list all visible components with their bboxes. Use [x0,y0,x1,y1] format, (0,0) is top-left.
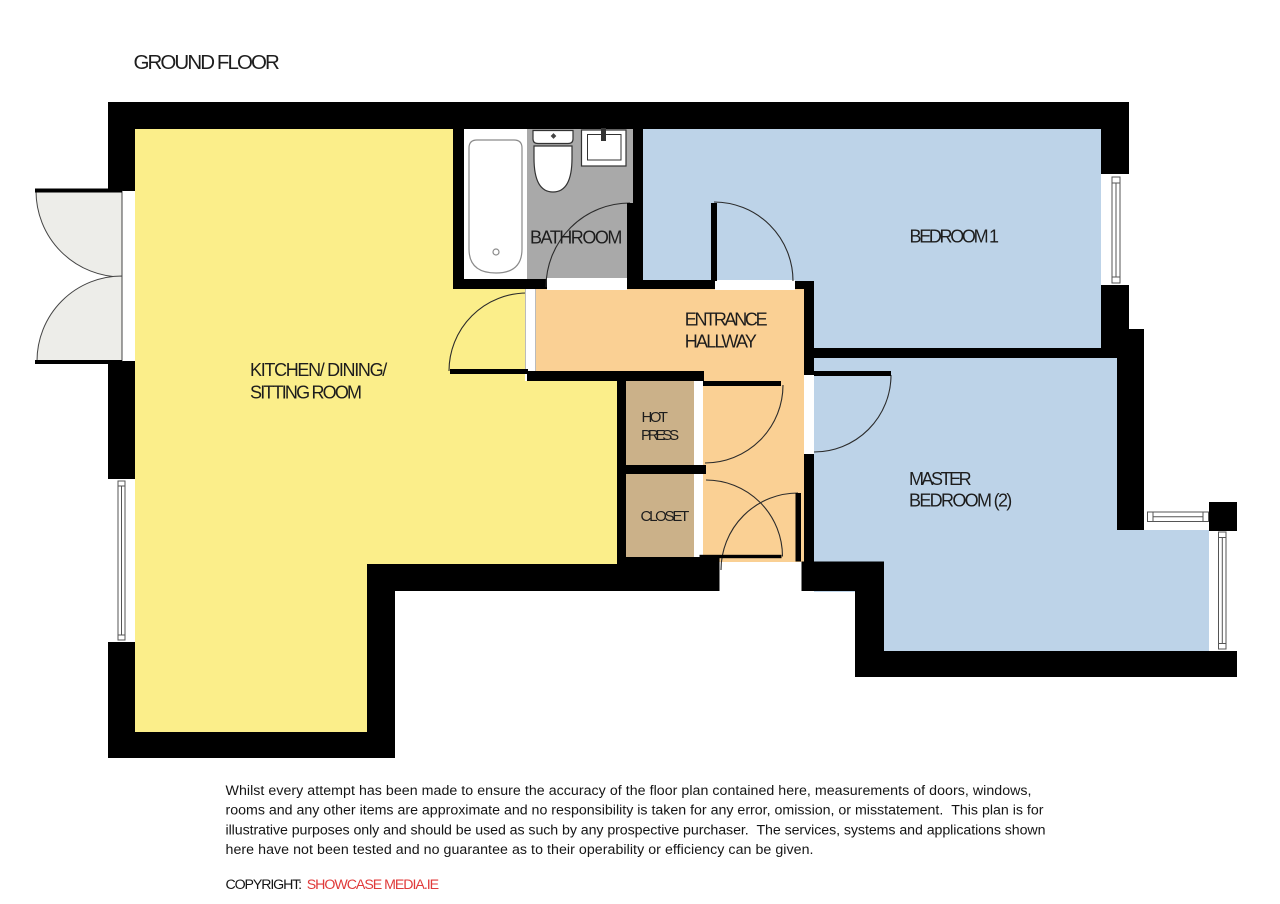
svg-text:illustrative purposes only and: illustrative purposes only and should be… [226,822,1046,838]
svg-text:SHOWCASE MEDIA.IE: SHOWCASE MEDIA.IE [307,877,439,893]
svg-text:HALLWAY: HALLWAY [685,332,757,352]
svg-text:rooms and any other items are: rooms and any other items are approximat… [226,803,1044,819]
svg-text:BEDROOM (2): BEDROOM (2) [909,491,1012,511]
svg-text:GROUND FLOOR: GROUND FLOOR [134,51,280,74]
svg-text:COPYRIGHT:: COPYRIGHT: [226,877,303,893]
svg-text:MASTER: MASTER [909,469,972,489]
svg-text:HOT: HOT [642,409,668,426]
svg-text:KITCHEN/ DINING/: KITCHEN/ DINING/ [250,360,387,380]
svg-text:BATHROOM: BATHROOM [530,228,622,248]
svg-text:PRESS: PRESS [641,427,679,444]
svg-text:ENTRANCE: ENTRANCE [685,310,768,330]
svg-text:SITTING ROOM: SITTING ROOM [250,383,362,403]
svg-text:CLOSET: CLOSET [641,508,690,525]
svg-text:here have not been tested and: here have not been tested and no guarant… [226,842,814,858]
svg-text:BEDROOM 1: BEDROOM 1 [910,227,1000,247]
svg-text:Whilst every attempt has been: Whilst every attempt has been made to en… [226,783,1032,799]
